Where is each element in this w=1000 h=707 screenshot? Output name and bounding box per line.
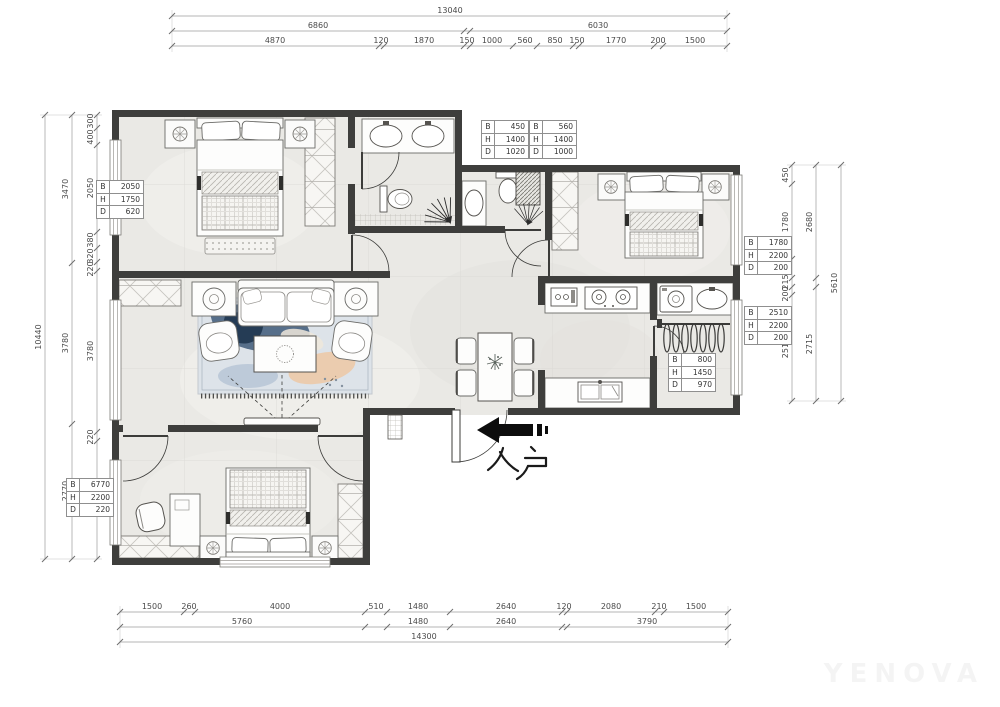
dim-label: 2640	[496, 617, 516, 626]
bhd-value: 220	[80, 504, 113, 516]
dim-label: 14300	[411, 632, 436, 641]
window	[220, 557, 330, 567]
dim-left-labels: 10440 3470 3780 2770 300 400 2050 380 32…	[34, 113, 95, 510]
furniture-size-box-laundry-wall: B2510 H2200 D200	[744, 306, 792, 345]
bhd-value: 560	[543, 121, 576, 133]
sink	[465, 190, 483, 216]
bhd-key: H	[669, 367, 682, 379]
chair	[514, 338, 534, 364]
dim-bottom	[117, 606, 731, 648]
tv	[244, 418, 320, 425]
dim-label: 5610	[830, 273, 839, 293]
dim-label: 2080	[601, 602, 621, 611]
bhd-key: B	[745, 307, 758, 319]
dim-label: 120	[373, 36, 388, 45]
dim-label: 200	[650, 36, 665, 45]
coffee-table	[254, 336, 316, 372]
dim-label: 260	[181, 602, 196, 611]
coffee-machine	[551, 288, 577, 306]
dim-label: 2640	[496, 602, 516, 611]
bhd-value: 1780	[758, 237, 791, 249]
dim-label: 6030	[588, 21, 608, 30]
bhd-key: H	[67, 492, 80, 504]
dim-label: 3790	[637, 617, 657, 626]
dim-label: 10440	[34, 324, 43, 349]
bhd-value: 1450	[682, 367, 715, 379]
furniture-size-box-drying-rack: B800 H1450 D970	[668, 353, 716, 392]
dim-label: 1000	[482, 36, 502, 45]
wardrobe	[338, 484, 363, 558]
bhd-value: 800	[682, 354, 715, 366]
bhd-value: 1000	[543, 146, 576, 158]
bhd-value: 200	[758, 262, 791, 274]
bhd-key: H	[745, 320, 758, 332]
shower-tray	[516, 172, 540, 205]
bhd-key: D	[745, 332, 758, 344]
entry-mark: 入户	[477, 417, 548, 479]
bhd-key: H	[482, 134, 495, 146]
dim-label: 510	[368, 602, 383, 611]
sofa	[238, 280, 334, 326]
bhd-value: 1400	[543, 134, 576, 146]
stove	[585, 287, 637, 309]
dim-label: 210	[651, 602, 666, 611]
bhd-key: B	[530, 121, 543, 133]
wardrobe	[552, 172, 578, 250]
bhd-key: D	[67, 504, 80, 516]
chair	[456, 338, 476, 364]
bhd-value: 6770	[80, 479, 113, 491]
washing-machine	[660, 286, 692, 312]
window	[731, 300, 742, 395]
bhd-key: H	[97, 194, 110, 206]
furniture-size-box-master-bed: B2050 H1750 D620	[96, 180, 144, 219]
armchair-right	[331, 320, 374, 363]
dim-label: 1480	[408, 617, 428, 626]
living-cabinet	[119, 280, 181, 306]
dim-label: 850	[547, 36, 562, 45]
bhd-key: B	[67, 479, 80, 491]
watermark: YENOVA	[824, 659, 984, 689]
furniture-size-box-bedroom-2: B1780 H2200 D200	[744, 236, 792, 275]
bed	[226, 468, 310, 560]
dim-label: 1500	[686, 602, 706, 611]
furniture-size-box-vanity-1: B450 H1400 D1020	[481, 120, 529, 159]
floor-plan-drawing: 入户 13040 6860 6030 4870 120 1870 150 100…	[0, 0, 1000, 707]
side-table-left	[192, 282, 236, 316]
dim-label: 220	[86, 429, 95, 444]
dim-label: 2680	[805, 212, 814, 232]
dim-top-labels: 13040 6860 6030 4870 120 1870 150 1000 5…	[265, 6, 705, 45]
dim-top	[169, 10, 730, 52]
dim-label: 220	[86, 261, 95, 276]
dim-label: 13040	[437, 6, 462, 15]
bhd-key: B	[669, 354, 682, 366]
desk	[170, 494, 200, 546]
bhd-value: 620	[110, 206, 143, 218]
bhd-key: H	[745, 250, 758, 262]
window	[110, 300, 121, 420]
bhd-key: D	[745, 262, 758, 274]
bhd-key: B	[745, 237, 758, 249]
bhd-key: D	[97, 206, 110, 218]
dim-label: 1870	[414, 36, 434, 45]
dim-label: 2715	[805, 334, 814, 354]
bhd-key: D	[530, 146, 543, 158]
bhd-value: 2200	[758, 250, 791, 262]
dim-label: 300	[86, 113, 95, 128]
bhd-value: 2050	[110, 181, 143, 193]
bhd-key: D	[482, 146, 495, 158]
sink	[370, 125, 402, 147]
bhd-key: B	[482, 121, 495, 133]
dim-label: 5760	[232, 617, 252, 626]
side-table-right	[334, 282, 378, 316]
bhd-value: 1750	[110, 194, 143, 206]
bhd-key: B	[97, 181, 110, 193]
dim-label: 200	[781, 286, 790, 301]
dim-label: 450	[781, 167, 790, 182]
entry-arrow-icon	[477, 417, 533, 443]
chair	[456, 370, 476, 396]
armchair-left	[198, 320, 241, 363]
furniture-size-box-bedroom-3: B6770 H2200 D220	[66, 478, 114, 517]
bhd-value: 200	[758, 332, 791, 344]
dim-label: 320	[86, 248, 95, 263]
window	[731, 175, 742, 265]
bhd-value: 450	[495, 121, 528, 133]
dim-label: 2050	[86, 178, 95, 198]
bhd-value: 970	[682, 379, 715, 391]
bhd-value: 2200	[80, 492, 113, 504]
dim-label: 150	[569, 36, 584, 45]
bhd-value: 2200	[758, 320, 791, 332]
dim-label: 3780	[86, 341, 95, 361]
dim-label: 4000	[270, 602, 290, 611]
dim-label: 150	[459, 36, 474, 45]
dim-label: 1500	[142, 602, 162, 611]
entry-column	[388, 415, 402, 439]
dim-label: 120	[556, 602, 571, 611]
bhd-value: 1020	[495, 146, 528, 158]
dim-label: 1780	[781, 212, 790, 232]
dim-label: 1480	[408, 602, 428, 611]
bhd-key: H	[530, 134, 543, 146]
bhd-key: D	[669, 379, 682, 391]
dim-label: 3470	[61, 179, 70, 199]
sink	[697, 289, 727, 309]
dim-label: 4870	[265, 36, 285, 45]
dim-label: 6860	[308, 21, 328, 30]
bhd-value: 2510	[758, 307, 791, 319]
dim-label: 1770	[606, 36, 626, 45]
furniture-size-box-vanity-2: B560 H1400 D1000	[529, 120, 577, 159]
dim-bottom-labels: 1500 260 4000 510 1480 2640 120 2080 210…	[142, 602, 706, 641]
dim-label: 380	[86, 232, 95, 247]
sink	[412, 125, 444, 147]
dim-label: 400	[86, 129, 95, 144]
bed-bench	[205, 238, 275, 254]
floor-plan-page: 入户 13040 6860 6030 4870 120 1870 150 100…	[0, 0, 1000, 707]
dim-label: 1500	[685, 36, 705, 45]
dim-label: 560	[517, 36, 532, 45]
kitchen-sink	[578, 380, 622, 402]
chair	[514, 370, 534, 396]
dim-label: 3780	[61, 333, 70, 353]
bhd-value: 1400	[495, 134, 528, 146]
